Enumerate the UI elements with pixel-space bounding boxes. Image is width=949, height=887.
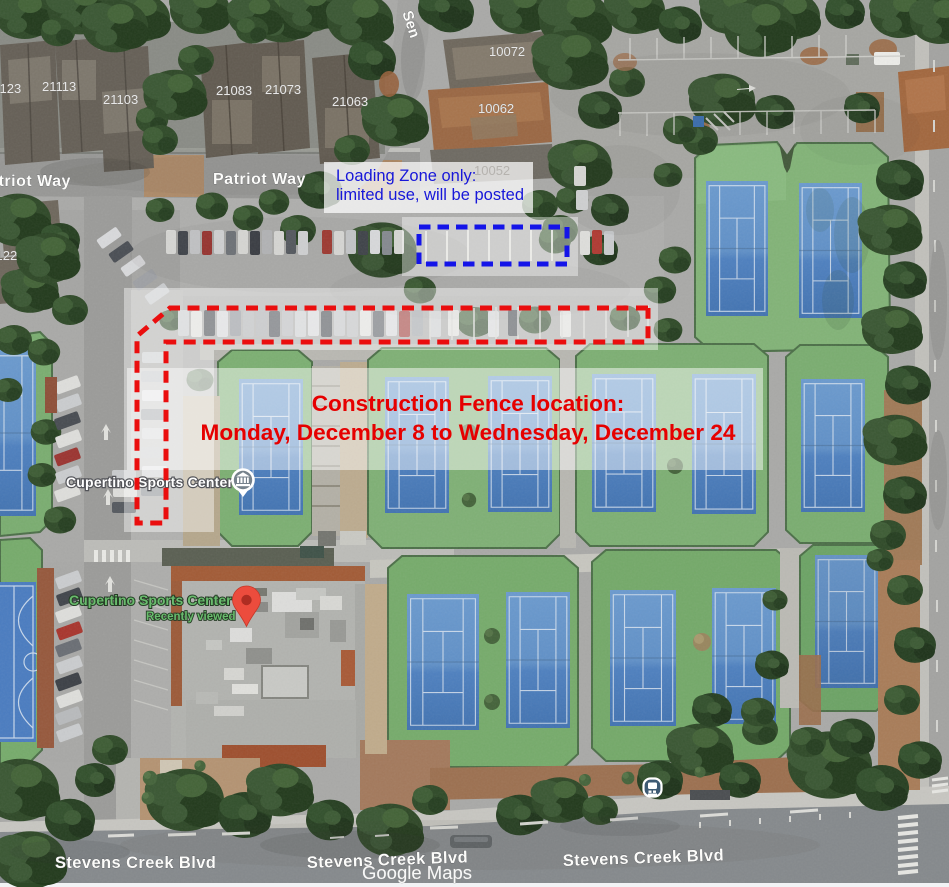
svg-text:Loading Zone only:: Loading Zone only: [336,167,476,185]
svg-text:limited use, will be posted: limited use, will be posted [336,186,524,204]
svg-text:21063: 21063 [332,94,368,109]
svg-text:10052: 10052 [474,163,510,178]
svg-text:Monday, December 8 to Wednesda: Monday, December 8 to Wednesday, Decembe… [201,420,736,445]
svg-text:Patriot Way: Patriot Way [213,171,306,188]
svg-text:21113: 21113 [42,79,76,94]
svg-text:Cupertino Sports Center: Cupertino Sports Center [66,474,234,490]
svg-text:21122: 21122 [0,248,17,263]
svg-text:21073: 21073 [265,82,301,97]
svg-text:21123: 21123 [0,81,21,96]
svg-text:10062: 10062 [478,101,514,116]
svg-text:Google Maps: Google Maps [362,862,472,883]
svg-text:Stevens Creek Blvd: Stevens Creek Blvd [55,854,216,872]
svg-text:21103: 21103 [103,92,138,107]
svg-text:21083: 21083 [216,83,252,98]
svg-text:10072: 10072 [489,44,525,59]
svg-text:Cupertino Sports Center: Cupertino Sports Center [69,592,232,608]
svg-text:Construction Fence location:: Construction Fence location: [312,391,625,416]
svg-text:Patriot Way: Patriot Way [0,173,71,190]
svg-text:Recently viewed: Recently viewed [146,611,235,623]
